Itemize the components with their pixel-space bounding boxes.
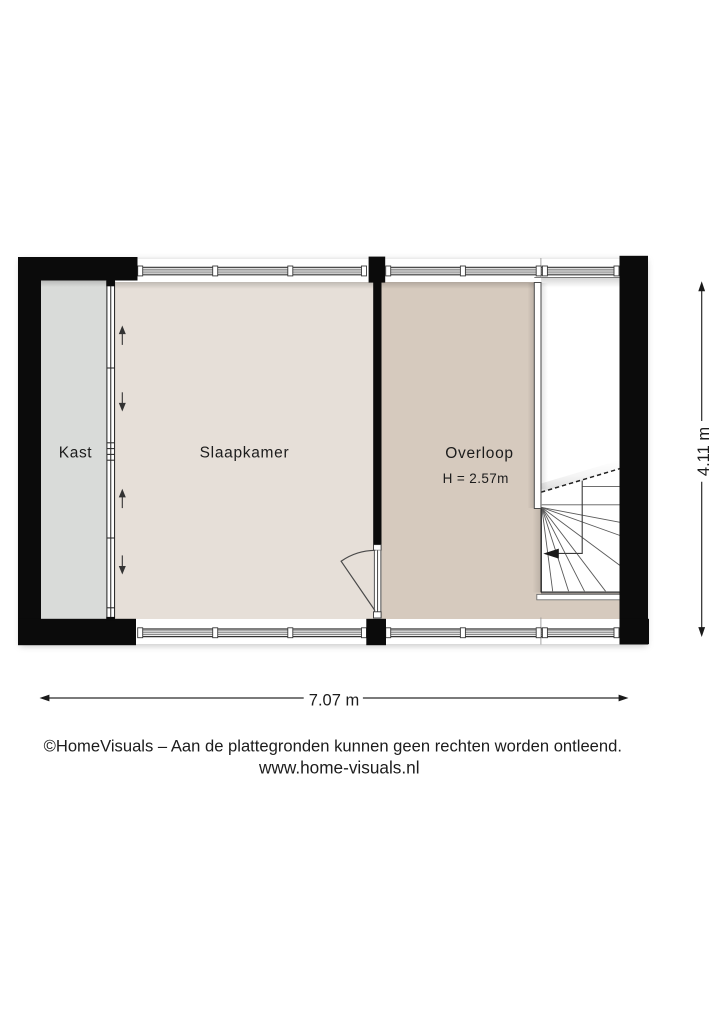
svg-text:©HomeVisuals – Aan de plattegr: ©HomeVisuals – Aan de plattegronden kunn…	[44, 737, 622, 756]
svg-text:Overloop: Overloop	[445, 445, 514, 462]
svg-text:4.11 m: 4.11 m	[695, 427, 713, 476]
svg-text:Slaapkamer: Slaapkamer	[200, 445, 290, 462]
svg-text:H = 2.57m: H = 2.57m	[443, 471, 509, 486]
svg-text:www.home-visuals.nl: www.home-visuals.nl	[258, 758, 419, 778]
svg-text:7.07 m: 7.07 m	[309, 691, 359, 709]
svg-text:Kast: Kast	[59, 444, 93, 461]
